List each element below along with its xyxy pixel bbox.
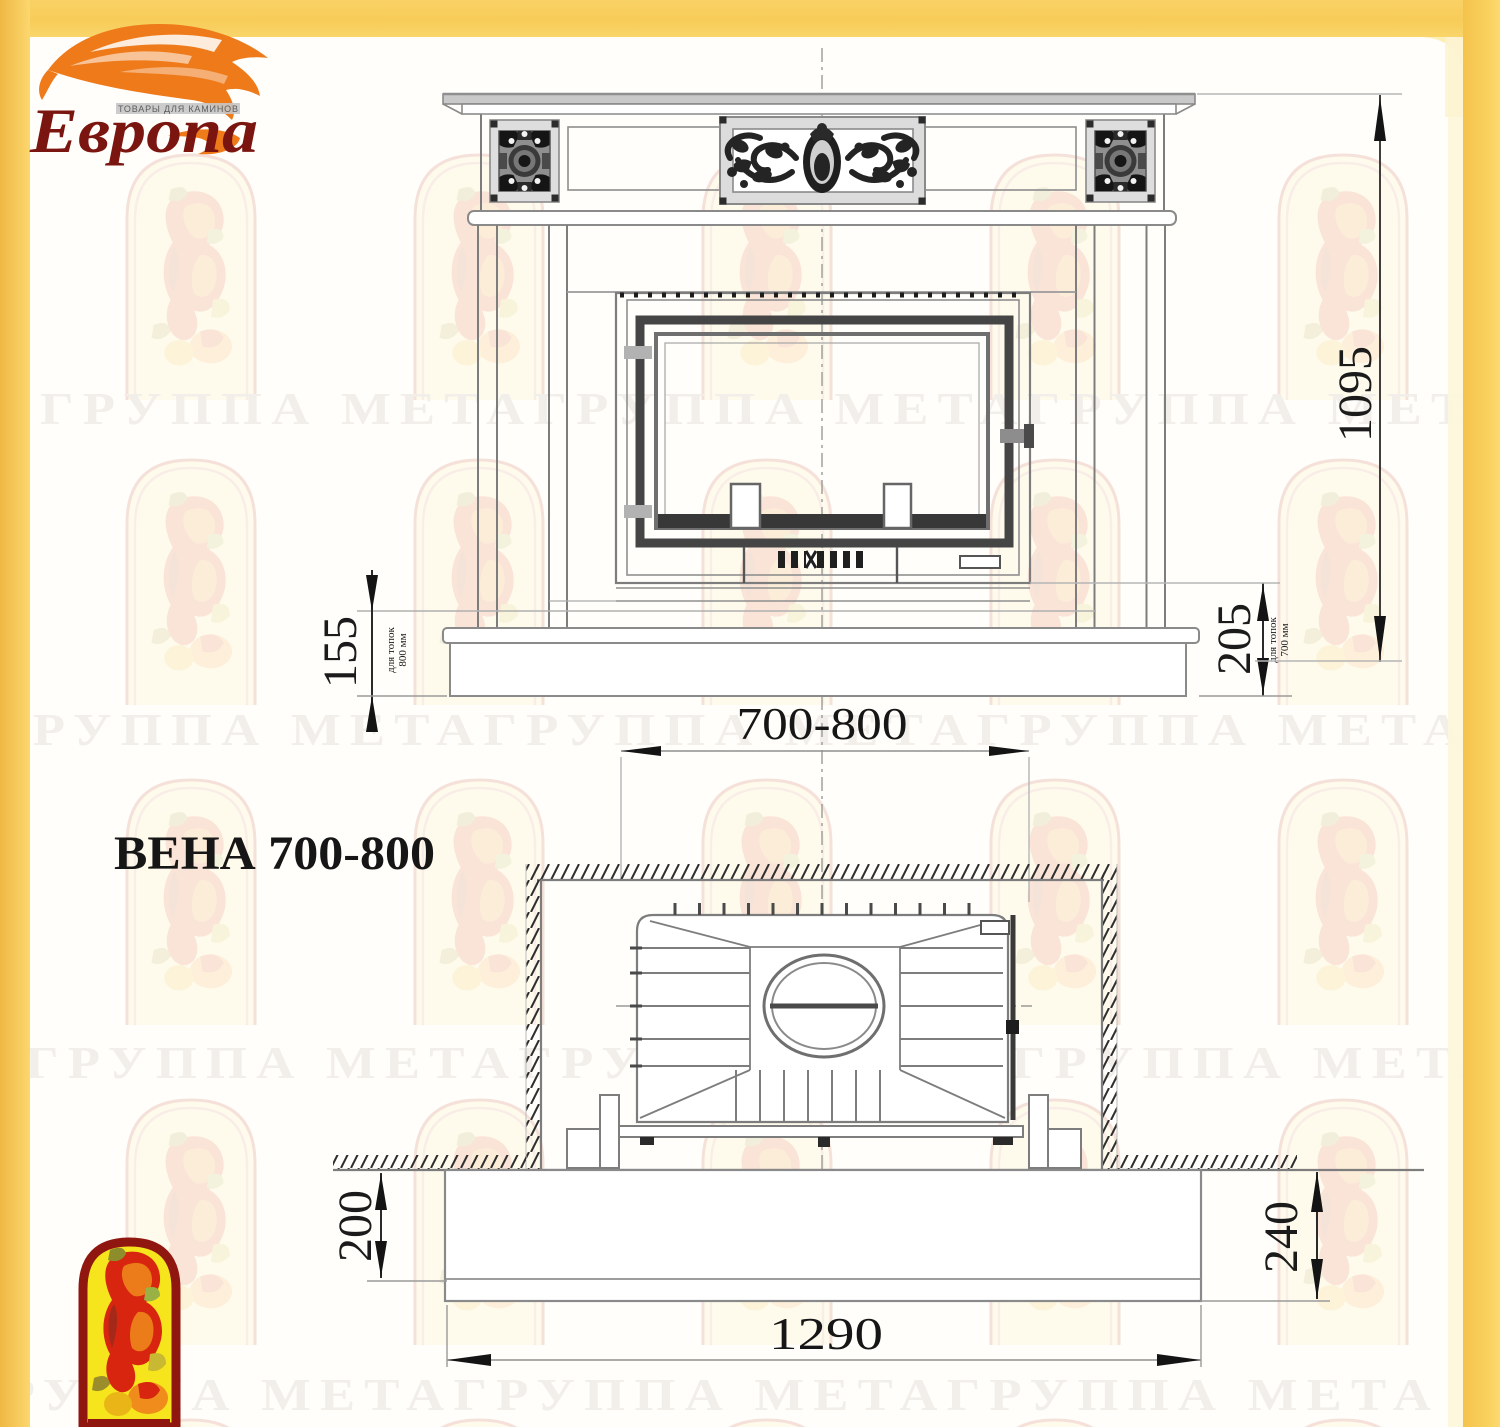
svg-text:ГРУППА МЕТАГРУППА МЕТАГРУППА М: ГРУППА МЕТАГРУППА МЕТАГРУППА МЕТА	[0, 1369, 1440, 1420]
svg-text:700-800: 700-800	[737, 698, 908, 749]
svg-text:240: 240	[1255, 1201, 1308, 1273]
svg-text:Европа: Европа	[29, 95, 258, 166]
svg-text:200: 200	[329, 1190, 382, 1262]
svg-text:ВЕНА 700-800: ВЕНА 700-800	[114, 827, 435, 880]
svg-text:205: 205	[1208, 603, 1261, 675]
svg-text:700 мм: 700 мм	[1279, 623, 1291, 656]
svg-text:для топок: для топок	[1267, 616, 1279, 662]
svg-text:800 мм: 800 мм	[397, 633, 409, 666]
svg-text:ГРУППА МЕТАГРУППА МЕТАГРУППА М: ГРУППА МЕТАГРУППА МЕТАГРУППА МЕТА	[40, 383, 1500, 434]
svg-text:1095: 1095	[1329, 346, 1382, 442]
svg-text:ГРУППА МЕТАГРУППА МЕТАГРУППА М: ГРУППА МЕТАГРУППА МЕТАГРУППА МЕТА	[0, 704, 1470, 755]
svg-text:1290: 1290	[769, 1308, 883, 1359]
svg-text:155: 155	[314, 616, 367, 688]
svg-text:для топок: для топок	[385, 626, 397, 672]
